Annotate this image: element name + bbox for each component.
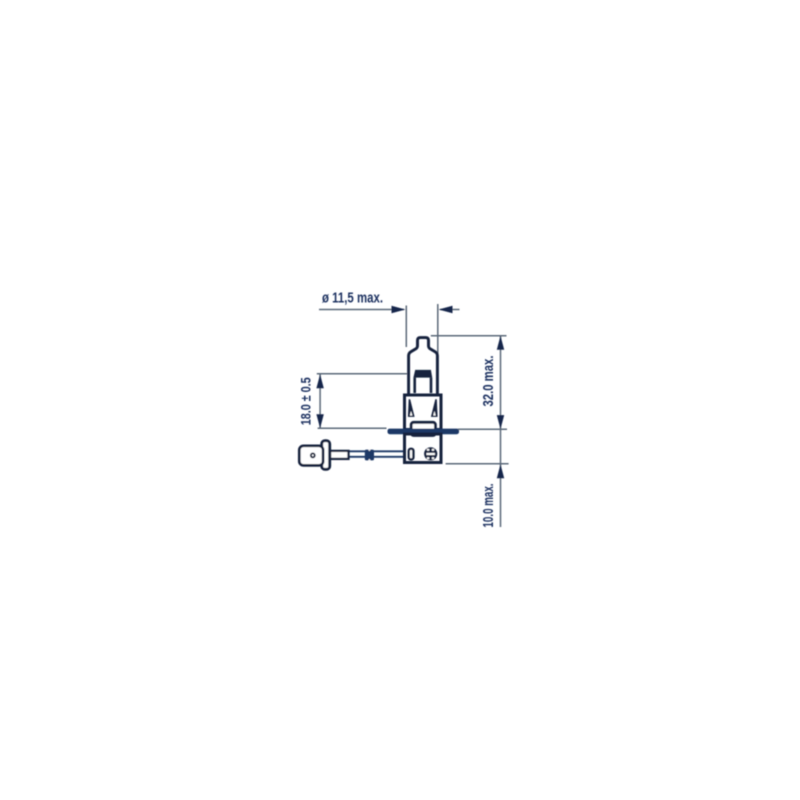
svg-text:32.0 max.: 32.0 max. — [480, 356, 497, 407]
svg-text:18.0 ± 0.5: 18.0 ± 0.5 — [298, 377, 314, 425]
svg-text:10.0 max.: 10.0 max. — [480, 484, 497, 528]
svg-text:ø 11,5 max.: ø 11,5 max. — [322, 291, 383, 307]
